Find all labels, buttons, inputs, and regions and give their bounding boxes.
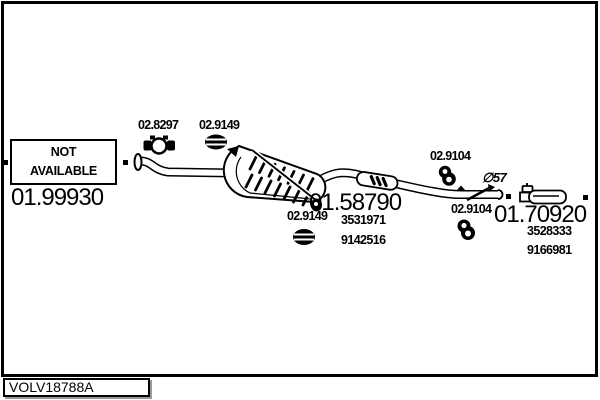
fitting-label-gasket-rear[interactable]: 02.9149 <box>287 210 327 223</box>
drawing-code-box: VOLV18788A <box>3 378 150 397</box>
mount-point-marker <box>123 160 128 165</box>
flex-coupling-drawing <box>356 171 399 191</box>
mount-point-marker <box>506 194 511 199</box>
oe-ref-mid-2: 9142516 <box>341 234 385 247</box>
part-number-front-pipe[interactable]: 01.99930 <box>11 186 103 210</box>
gasket-icon-rear <box>293 229 315 245</box>
hanger-icon-mid <box>439 166 456 186</box>
fitting-label-hanger-rear[interactable]: 02.9104 <box>451 203 491 216</box>
gasket-icon-front <box>205 135 227 150</box>
not-available-line1: NOT <box>51 143 77 162</box>
hanger-icon-rear <box>458 220 476 241</box>
clamp-icon <box>144 136 176 154</box>
drawing-code: VOLV18788A <box>9 379 94 395</box>
mount-point-marker <box>3 160 8 165</box>
mount-point-marker <box>583 195 588 200</box>
exhaust-diagram-page: NOT AVAILABLE 01.99930 01.58790 01.70920… <box>0 0 600 400</box>
oe-ref-mid-1: 3531971 <box>341 214 385 227</box>
not-available-box: NOT AVAILABLE <box>10 139 117 185</box>
oe-ref-rear-2: 9166981 <box>527 244 571 257</box>
fitting-label-hanger-mid[interactable]: 02.9104 <box>430 150 470 163</box>
fitting-label-gasket-front[interactable]: 02.9149 <box>199 119 239 132</box>
pipe-diameter-label: ∅57 <box>482 171 506 184</box>
oe-ref-rear-1: 3528333 <box>527 225 571 238</box>
not-available-line2: AVAILABLE <box>30 162 97 181</box>
front-pipe-drawing <box>135 154 233 173</box>
pipe-bracket-bump <box>456 186 466 192</box>
fitting-label-clamp[interactable]: 02.8297 <box>138 119 178 132</box>
